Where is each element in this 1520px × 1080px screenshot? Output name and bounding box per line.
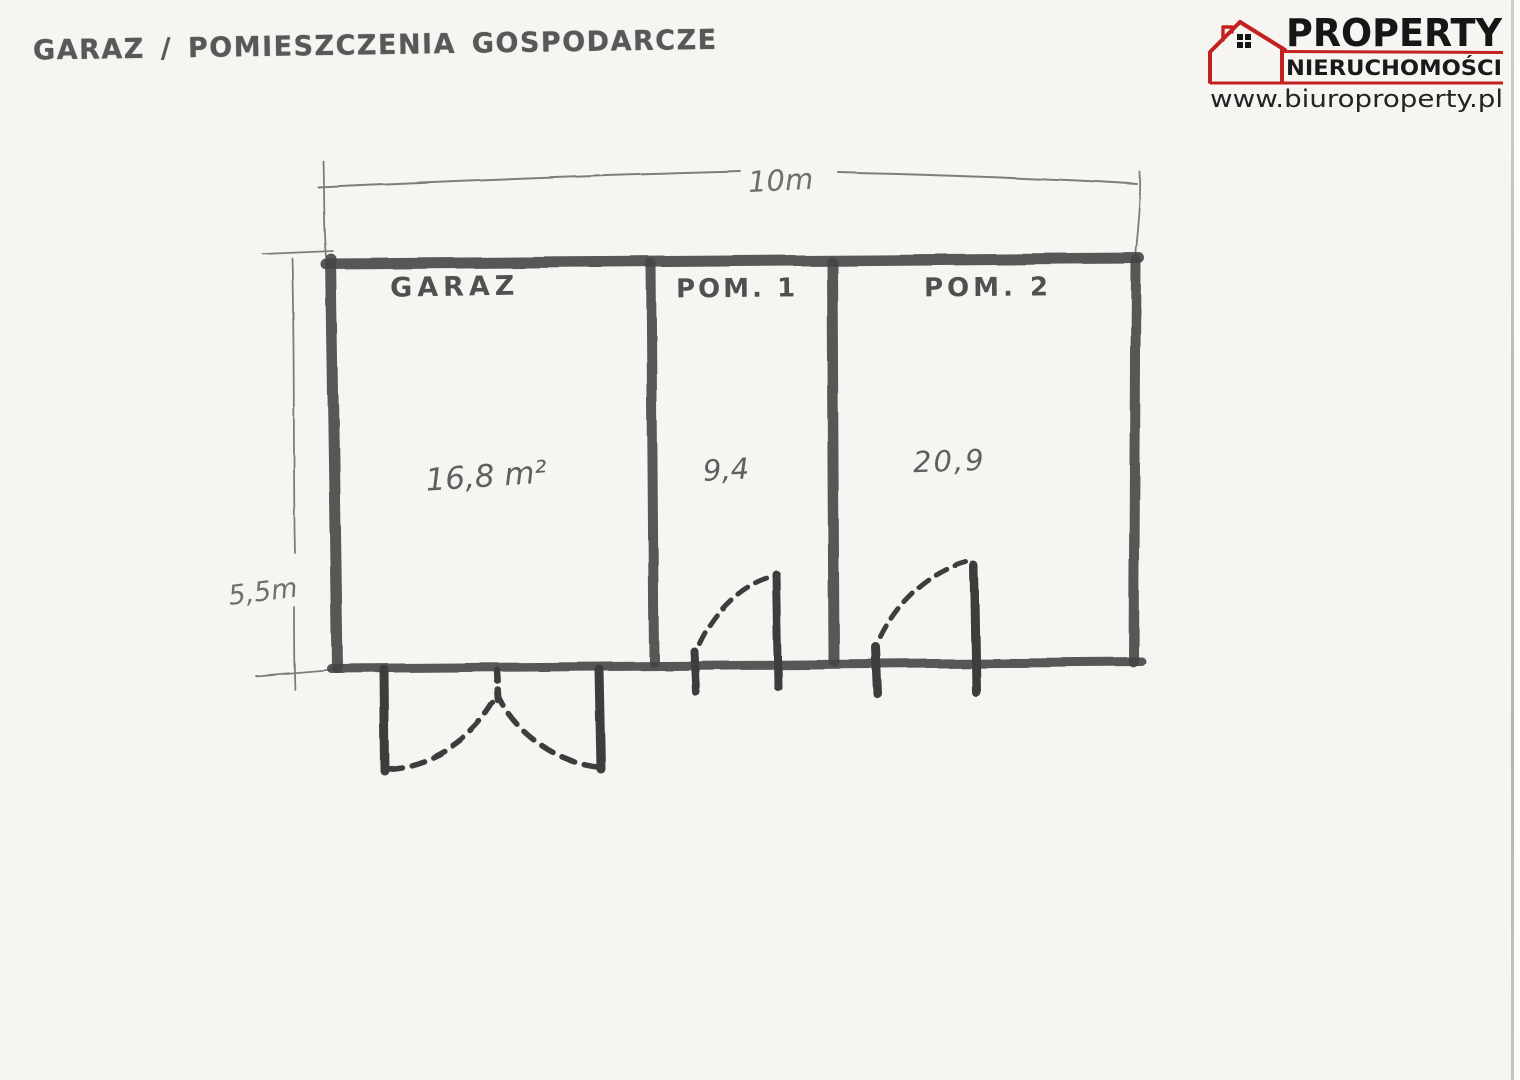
garage-door-symbol bbox=[384, 669, 601, 771]
width-dimension-line bbox=[838, 172, 1137, 184]
area-label-garaz: 16,8 m² bbox=[424, 454, 548, 498]
height-dimension-line bbox=[294, 607, 295, 690]
outer-wall-bottom bbox=[331, 662, 1142, 668]
garage-door-swing-arc-left bbox=[389, 699, 496, 769]
floor-plan-sketch: GARAZ POM. 1 POM. 2 16,8 m² 9,4 20,9 10m… bbox=[0, 0, 1520, 1080]
garage-door-jamb-right bbox=[599, 669, 601, 769]
width-dimension-line bbox=[318, 171, 740, 187]
room-label-pom1: POM. 1 bbox=[676, 273, 798, 304]
dimension-tick-left bbox=[323, 161, 326, 257]
pom2-door-leaf bbox=[974, 566, 976, 692]
scanned-floor-plan-page: GARAZ / POMIESZCZENIA GOSPODARCZE bbox=[0, 0, 1520, 1080]
outer-wall-top bbox=[326, 258, 1139, 264]
partition-wall-pom1-pom2 bbox=[832, 262, 834, 661]
extension-line-top-left bbox=[263, 251, 333, 254]
scan-edge-artifact bbox=[1511, 0, 1514, 1080]
pom2-door-symbol bbox=[876, 562, 976, 694]
scan-margin-strip bbox=[1514, 0, 1520, 1080]
room-label-garaz: GARAZ bbox=[390, 271, 520, 304]
pom1-door-leaf bbox=[776, 574, 778, 687]
area-label-pom2: 20,9 bbox=[912, 443, 986, 480]
area-label-pom1: 9,4 bbox=[702, 451, 750, 487]
height-dimension-line bbox=[292, 258, 295, 553]
pom1-door-jamb bbox=[694, 651, 696, 692]
pom1-door-symbol bbox=[694, 574, 778, 692]
width-dimension-label: 10m bbox=[747, 162, 814, 199]
pom2-door-jamb bbox=[876, 647, 878, 694]
garage-door-swing-arc-right bbox=[500, 699, 597, 767]
partition-wall-garaz-pom1 bbox=[651, 263, 654, 662]
room-label-pom2: POM. 2 bbox=[924, 272, 1052, 303]
outer-wall-left bbox=[331, 259, 337, 667]
pom1-door-swing-arc bbox=[699, 577, 768, 643]
height-dimension-label: 5,5m bbox=[227, 573, 300, 612]
pom2-door-swing-arc bbox=[881, 562, 966, 637]
garage-door-jamb-left bbox=[384, 669, 385, 771]
outer-wall-right bbox=[1134, 260, 1136, 663]
extension-line-bottom-left bbox=[256, 669, 339, 676]
